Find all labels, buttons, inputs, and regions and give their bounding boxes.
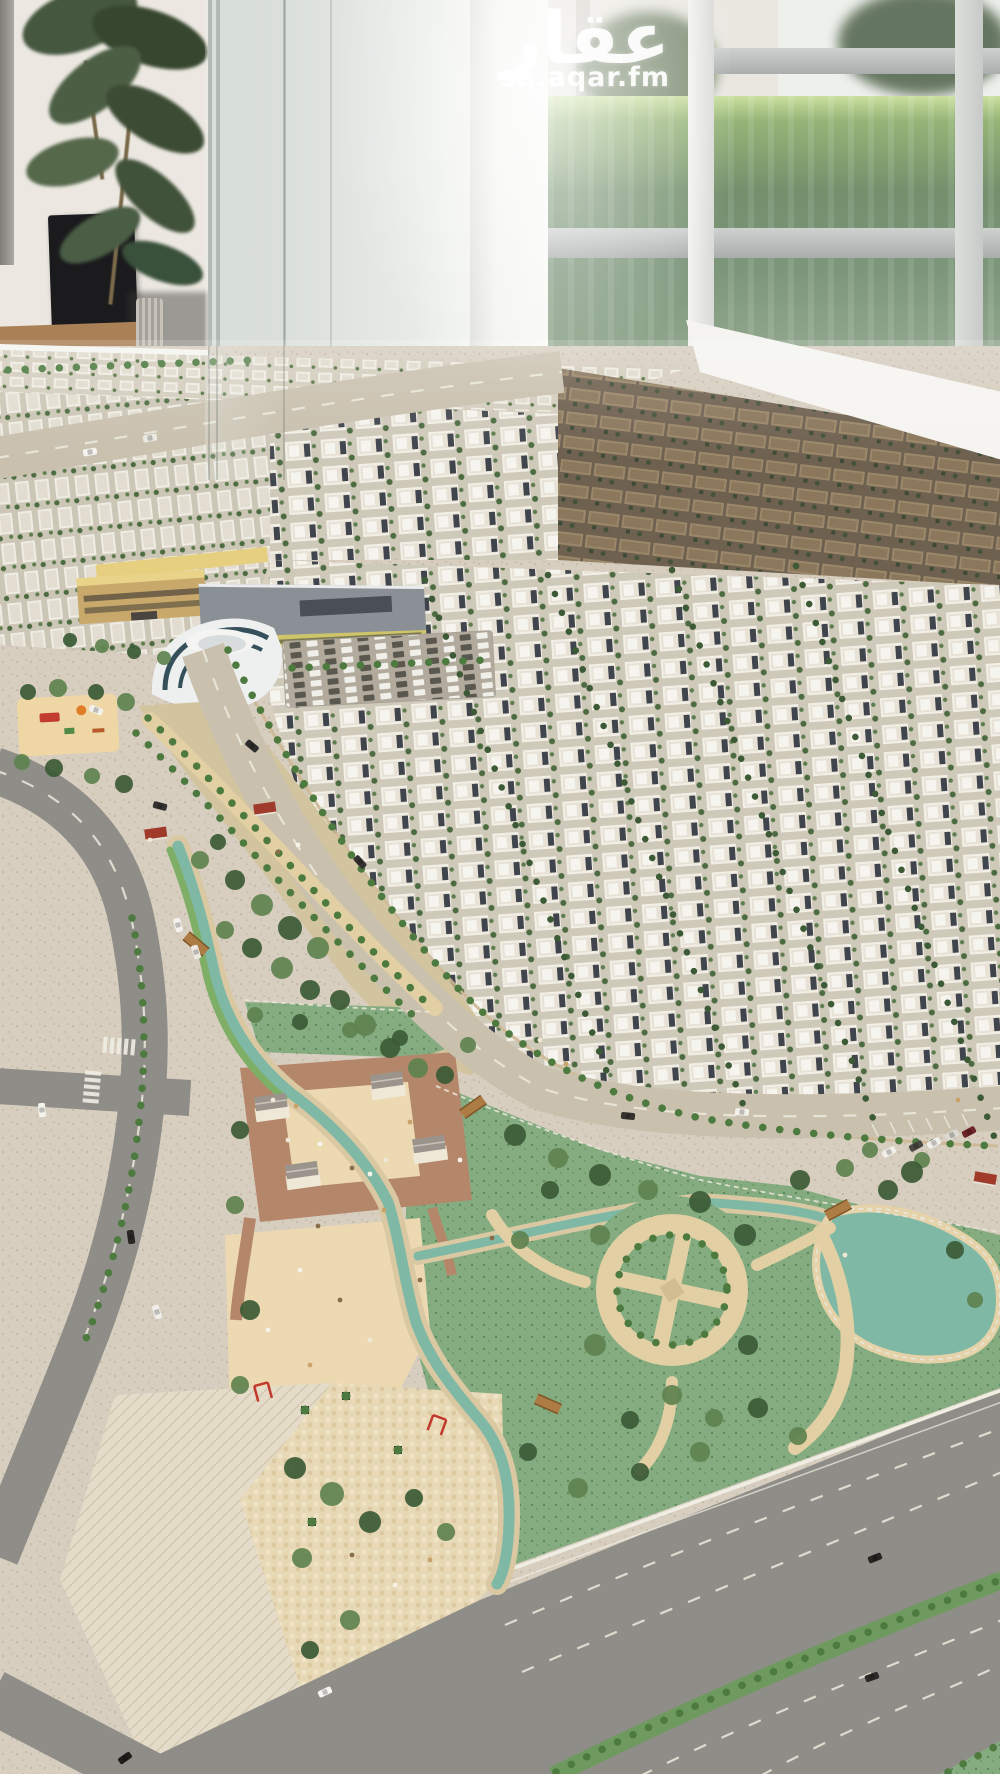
parking-lot — [282, 631, 495, 708]
play-structure-red — [39, 712, 59, 722]
playground — [17, 693, 120, 756]
photo-architectural-scale-model: عقار sa.aqar.fm — [0, 0, 1000, 1774]
play-structure — [92, 728, 104, 733]
school-building-tan — [76, 569, 207, 624]
play-structure-green — [64, 728, 74, 735]
city-masterplan-model — [0, 0, 1000, 1774]
